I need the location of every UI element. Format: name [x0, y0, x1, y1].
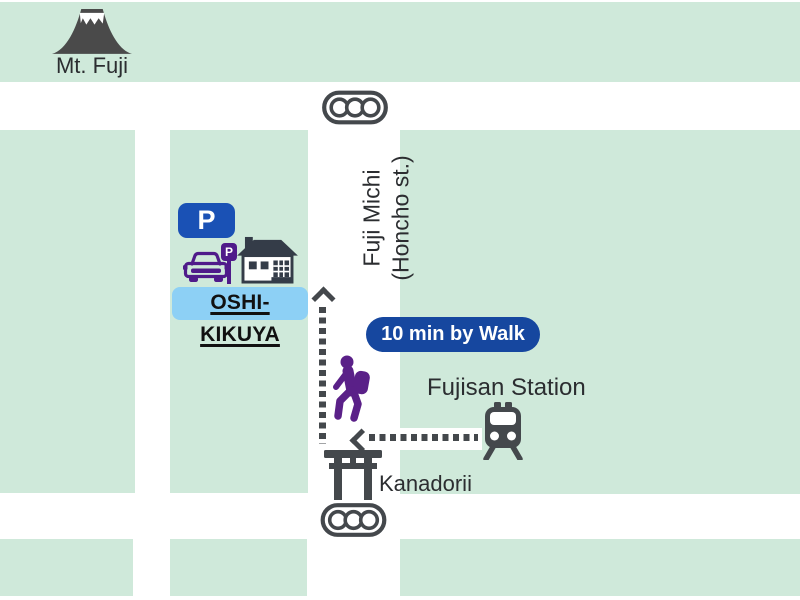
city-block: [0, 539, 133, 596]
street-name-label: Fuji Michi (Honcho st.): [357, 155, 414, 280]
mini-parking-sign-pole: [227, 260, 231, 284]
route-dotted-horizontal: [369, 434, 478, 441]
house-icon: [237, 235, 298, 284]
mt-fuji-icon: [51, 2, 133, 55]
hiker-icon: [331, 354, 375, 424]
city-block: [400, 539, 800, 596]
destination-label: OSHI-KIKUYA: [172, 287, 308, 320]
city-block: [170, 539, 307, 596]
street-name-line2: (Honcho st.): [387, 155, 413, 280]
torii-label: Kanadorii: [379, 471, 472, 497]
access-map: Mt. Fuji Fuji Michi (Honcho st.) P: [0, 0, 800, 600]
walk-time-badge: 10 min by Walk: [366, 317, 540, 352]
mini-parking-sign-icon: P: [221, 243, 237, 285]
parking-sign: P: [178, 203, 235, 238]
traffic-light-bottom-icon: [319, 503, 388, 537]
destination-text: OSHI-KIKUYA: [200, 291, 280, 346]
traffic-light-top-icon: [322, 90, 388, 125]
street-name-line1: Fuji Michi: [358, 169, 384, 266]
mt-fuji-label: Mt. Fuji: [51, 53, 133, 79]
city-block: [0, 130, 135, 493]
mini-parking-sign-board: P: [221, 243, 237, 261]
train-icon: [483, 402, 523, 460]
route-dotted-vertical: [319, 307, 326, 444]
torii-gate-icon: [324, 446, 382, 500]
station-label: Fujisan Station: [427, 374, 586, 402]
